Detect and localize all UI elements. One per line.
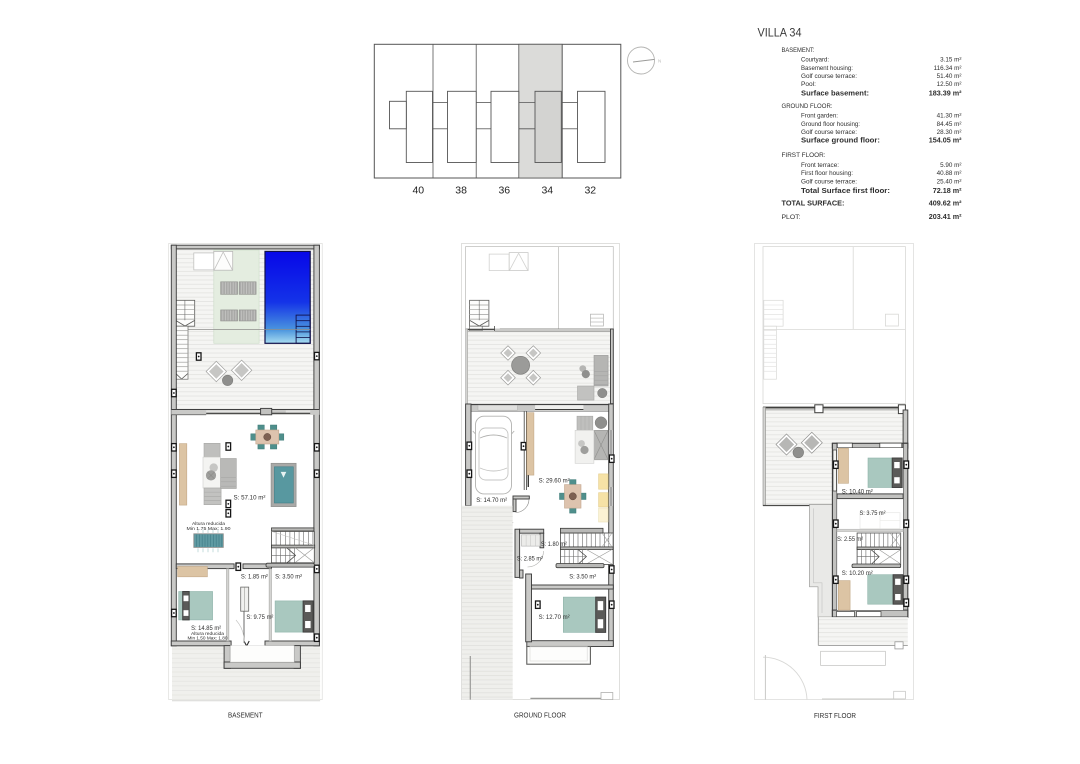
svg-text:84.45 m²: 84.45 m² <box>937 121 962 128</box>
svg-text:S: 10.40 m²: S: 10.40 m² <box>842 488 873 495</box>
svg-text:S: 1.80 m²: S: 1.80 m² <box>541 541 567 548</box>
svg-text:12.50 m²: 12.50 m² <box>937 81 962 88</box>
svg-text:36: 36 <box>498 185 510 197</box>
svg-text:Courtyard:: Courtyard: <box>801 57 829 64</box>
svg-text:72.18 m²: 72.18 m² <box>933 186 962 195</box>
svg-text:34: 34 <box>541 185 553 197</box>
svg-text:203.41 m²: 203.41 m² <box>929 212 962 221</box>
svg-text:VILLA 34: VILLA 34 <box>758 26 802 40</box>
svg-text:32: 32 <box>584 185 596 197</box>
svg-text:Pool:: Pool: <box>801 81 816 88</box>
svg-text:Golf course terrace:: Golf course terrace: <box>801 73 857 80</box>
svg-text:S: 12.70 m²: S: 12.70 m² <box>539 614 570 621</box>
svg-text:Min 1.75 Max: 1.90: Min 1.75 Max: 1.90 <box>187 526 231 531</box>
svg-text:S: 3.50 m²: S: 3.50 m² <box>275 574 302 581</box>
svg-text:S: 3.75 m²: S: 3.75 m² <box>860 510 886 517</box>
svg-text:S: 3.50 m²: S: 3.50 m² <box>569 573 596 580</box>
svg-text:154.05 m²: 154.05 m² <box>929 136 962 145</box>
svg-text:Surface basement:: Surface basement: <box>801 89 869 98</box>
svg-text:116.34 m²: 116.34 m² <box>934 65 962 72</box>
svg-text:S: 14.70 m²: S: 14.70 m² <box>476 497 507 504</box>
svg-text:3.15 m²: 3.15 m² <box>940 57 961 64</box>
svg-text:41.30 m²: 41.30 m² <box>937 113 962 120</box>
svg-text:S: 1.85 m²: S: 1.85 m² <box>241 574 268 581</box>
svg-text:S: 2.55 m²: S: 2.55 m² <box>837 536 863 543</box>
svg-text:40.88 m²: 40.88 m² <box>937 170 962 177</box>
svg-text:25.40 m²: 25.40 m² <box>937 178 962 185</box>
svg-text:PLOT:: PLOT: <box>782 214 801 221</box>
svg-text:BASEMENT: BASEMENT <box>228 710 263 719</box>
svg-text:N: N <box>658 59 661 64</box>
svg-text:51.40 m²: 51.40 m² <box>937 73 962 80</box>
svg-text:183.39 m²: 183.39 m² <box>929 89 962 98</box>
svg-text:First floor housing:: First floor housing: <box>801 170 853 177</box>
svg-text:Basement housing:: Basement housing: <box>801 65 853 72</box>
svg-text:S: 10.20 m²: S: 10.20 m² <box>842 570 873 577</box>
svg-text:Ground floor housing:: Ground floor housing: <box>801 121 860 128</box>
svg-text:GROUND FLOOR:: GROUND FLOOR: <box>782 103 833 110</box>
svg-text:FIRST FLOOR:: FIRST FLOOR: <box>782 152 826 159</box>
svg-text:5.90 m²: 5.90 m² <box>940 162 961 169</box>
svg-text:Min 1.50 Max: 1.80: Min 1.50 Max: 1.80 <box>188 636 228 641</box>
svg-text:38: 38 <box>455 185 467 197</box>
svg-text:FIRST FLOOR: FIRST FLOOR <box>814 711 856 720</box>
svg-text:S: 2.85 m²: S: 2.85 m² <box>517 556 543 563</box>
svg-text:40: 40 <box>412 185 424 197</box>
svg-text:S: 57.10 m²: S: 57.10 m² <box>234 494 266 501</box>
svg-text:Surface ground floor:: Surface ground floor: <box>801 136 880 145</box>
svg-text:GROUND FLOOR: GROUND FLOOR <box>514 710 566 719</box>
svg-text:409.62 m²: 409.62 m² <box>929 198 962 207</box>
svg-text:BASEMENT:: BASEMENT: <box>782 47 815 54</box>
svg-text:S: 29.60 m²: S: 29.60 m² <box>539 478 570 485</box>
svg-text:Golf course terrace:: Golf course terrace: <box>801 178 857 185</box>
svg-text:Front garden:: Front garden: <box>801 113 838 120</box>
svg-text:TOTAL SURFACE:: TOTAL SURFACE: <box>782 198 845 207</box>
svg-text:S: 9.75 m²: S: 9.75 m² <box>246 614 273 621</box>
svg-text:Total Surface first floor:: Total Surface first floor: <box>801 186 890 195</box>
svg-text:Front terrace:: Front terrace: <box>801 162 839 169</box>
